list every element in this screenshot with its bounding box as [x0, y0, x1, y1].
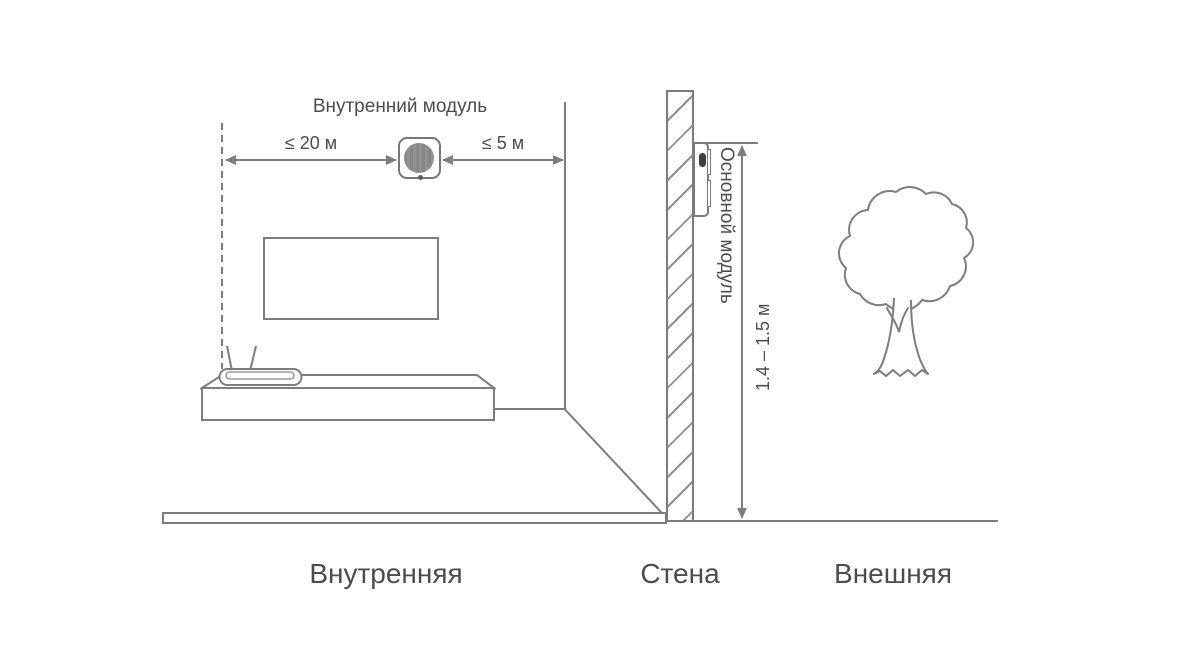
floor-slab	[162, 512, 667, 524]
dashed-reference-line	[221, 123, 223, 369]
distance-arrow-20m	[226, 159, 396, 161]
indoor-module-title: Внутренний модуль	[280, 96, 520, 118]
height-arrow	[741, 146, 743, 518]
tree-icon	[838, 180, 980, 390]
height-reference-line	[700, 142, 758, 144]
zone-label-inner: Внутренняя	[286, 558, 486, 590]
distance-label-5m: ≤ 5 м	[443, 133, 563, 154]
wall-base-diagonal-line	[564, 408, 667, 517]
height-label: 1.4 – 1.5 м	[753, 304, 774, 391]
cabinet-wall-connector-line	[493, 408, 566, 410]
distance-label-20m: ≤ 20 м	[226, 133, 396, 154]
installation-diagram: Внутренний модуль ≤ 20 м ≤ 5 м Осн	[0, 0, 1179, 663]
indoor-module-icon	[398, 137, 441, 179]
zone-label-wall: Стена	[610, 558, 750, 590]
hatched-wall	[666, 90, 694, 522]
wifi-router-icon	[218, 342, 306, 388]
main-module-slot-bottom	[707, 180, 711, 207]
ground-line	[694, 520, 998, 522]
main-module-slot-top	[707, 149, 711, 175]
main-module-sensor	[699, 153, 706, 167]
distance-arrow-5m	[443, 159, 563, 161]
main-module-label: Основной модуль	[715, 147, 737, 304]
interior-corner-line	[564, 102, 566, 409]
tv-screen	[263, 237, 439, 320]
zone-label-outer: Внешняя	[793, 558, 993, 590]
indoor-module-notch	[418, 175, 423, 180]
indoor-module-lens	[404, 143, 434, 173]
